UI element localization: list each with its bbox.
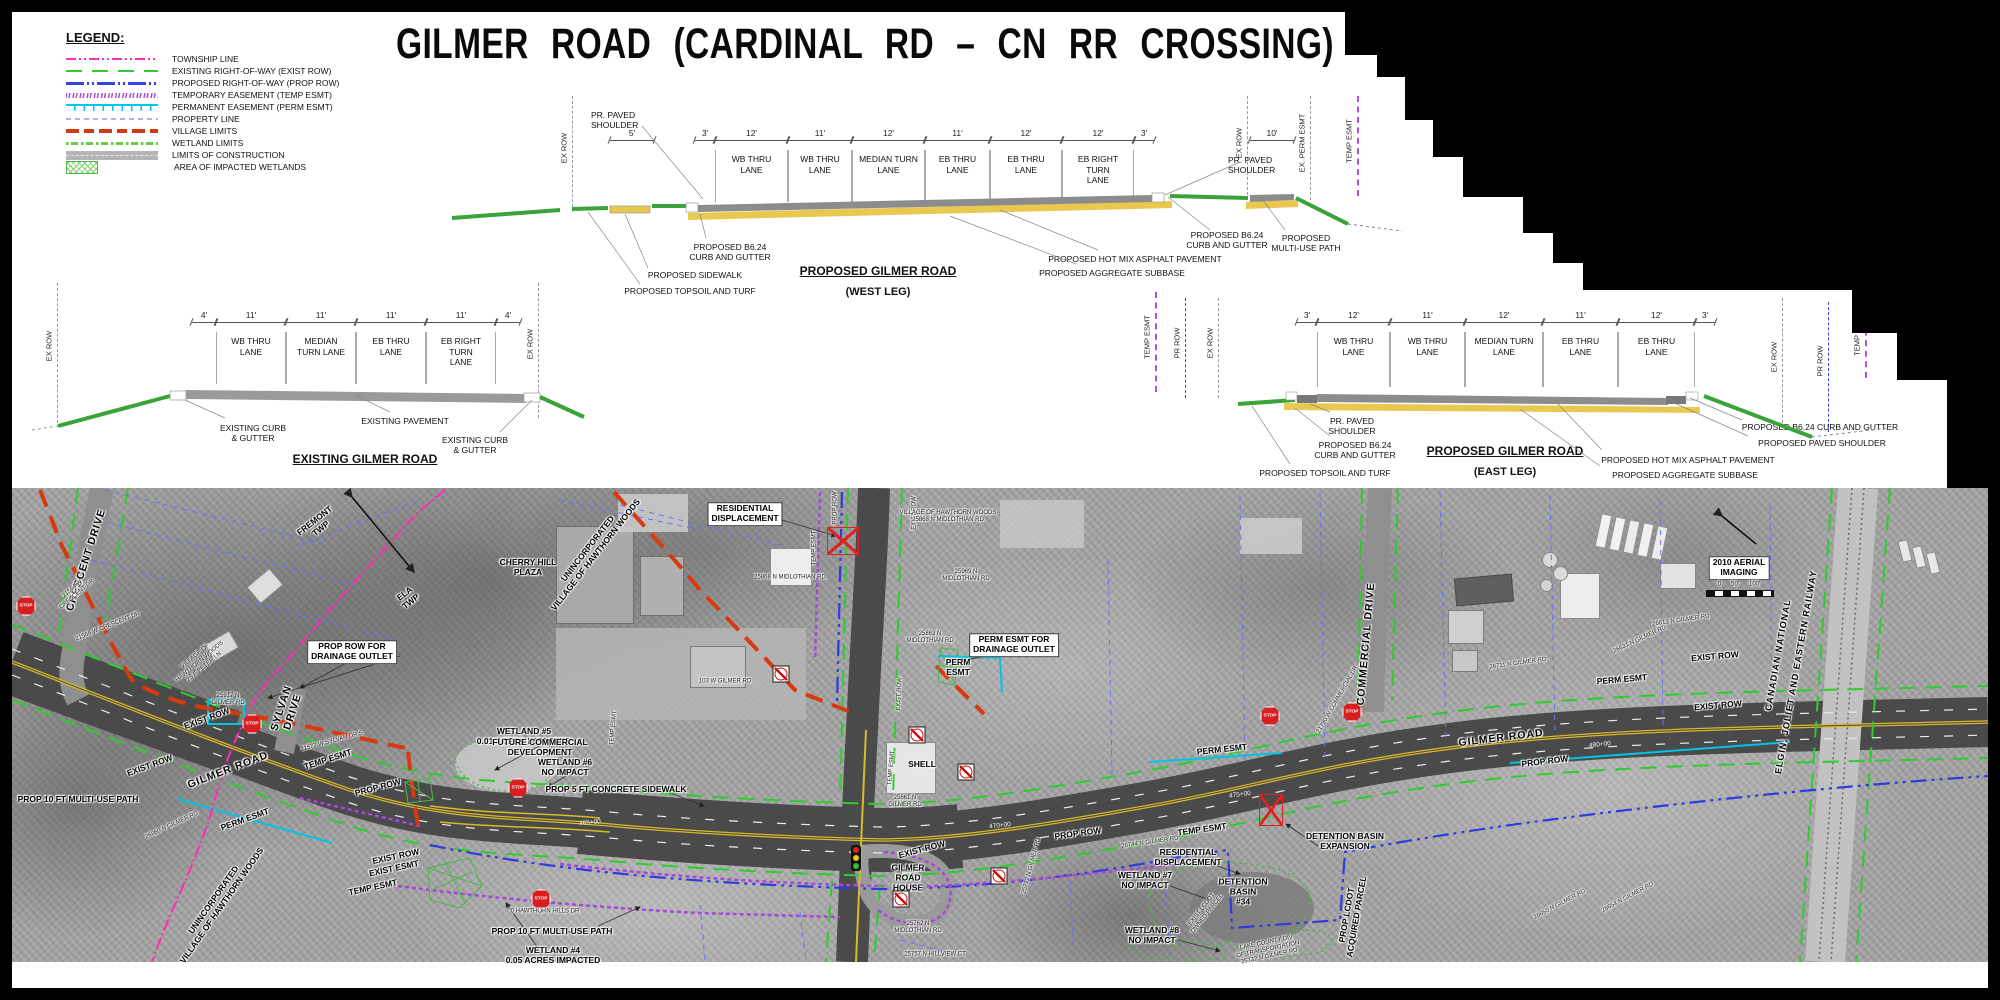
west-leg-drawing (452, 126, 1402, 284)
black-step-artifact (1897, 333, 2000, 380)
black-step-artifact (1583, 263, 2000, 290)
black-step-artifact (1852, 290, 2000, 333)
black-step-artifact (1433, 120, 2000, 157)
gilmer-road (12, 662, 1988, 840)
scale-bar (1706, 590, 1774, 597)
plan-sheet-page: GILMER ROAD (CARDINAL RD – CN RR CROSSIN… (0, 0, 2000, 1000)
commercial-drive-road (1372, 488, 1380, 712)
east-leg-drawing (1238, 392, 1888, 466)
black-step-artifact (1345, 12, 2000, 55)
black-step-artifact (1523, 197, 2000, 233)
township-arrow (352, 497, 414, 572)
black-step-artifact (1947, 380, 2000, 488)
north-arrow (1722, 516, 1756, 544)
black-step-artifact (1553, 233, 2000, 263)
black-step-artifact (1377, 55, 2000, 77)
black-step-artifact (1405, 77, 2000, 120)
sylvan-drive-road (284, 688, 296, 752)
black-step-artifact (1463, 157, 2000, 197)
existing-drawing (32, 390, 584, 432)
